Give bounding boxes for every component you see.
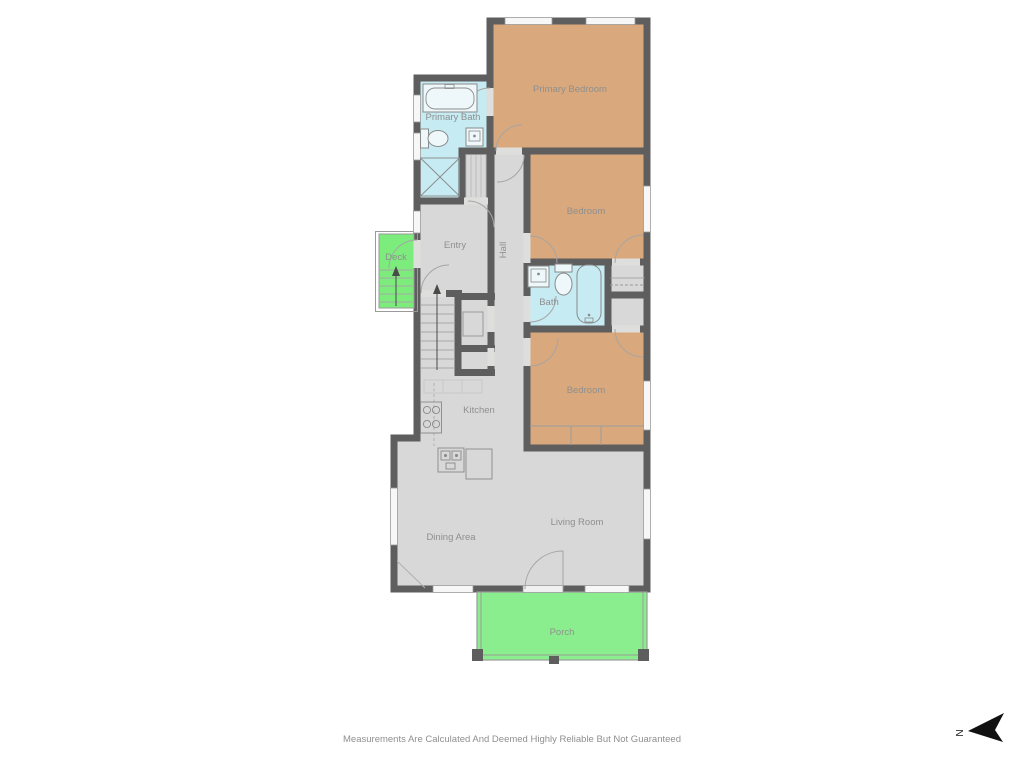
disclaimer-text: Measurements Are Calculated And Deemed H… [0, 734, 1024, 745]
room-a-door-opening [488, 306, 495, 332]
closet-top [608, 262, 647, 295]
porch-post [638, 649, 649, 661]
label-entry: Entry [444, 240, 466, 251]
closet-bottom [608, 295, 647, 329]
toilet-icon [555, 264, 572, 295]
sink-icon [528, 266, 549, 287]
deck [376, 232, 418, 312]
primary-bedroom-door-opening [496, 148, 522, 155]
label-bedroom-3: Bedroom [567, 385, 606, 396]
window [644, 381, 651, 430]
stair-right-wall [455, 290, 462, 376]
bedroom3-door-opening [524, 338, 531, 366]
window [644, 186, 651, 232]
label-bath-2: Bath [539, 297, 559, 308]
label-bedroom-2: Bedroom [567, 206, 606, 217]
closet-bottom-door-opening [612, 326, 640, 333]
label-hall: Hall [498, 242, 509, 258]
label-deck: Deck [385, 252, 407, 263]
bedroom2-door-opening [524, 233, 531, 263]
toilet-icon [421, 129, 449, 148]
label-dining-area: Dining Area [426, 532, 476, 543]
floor-plan-page: Primary Bedroom Primary Bath Bedroom Bat… [0, 0, 1024, 768]
label-primary-bedroom: Primary Bedroom [533, 84, 607, 95]
porch-floor [477, 592, 647, 660]
window [585, 586, 629, 593]
primary-bath-door-opening [487, 88, 494, 116]
porch-post [472, 649, 483, 661]
label-porch: Porch [550, 627, 575, 638]
sink-icon [466, 128, 483, 146]
window [414, 211, 421, 233]
window [433, 586, 473, 593]
bath2-door-opening [524, 296, 531, 322]
label-kitchen: Kitchen [463, 405, 495, 416]
label-primary-bath: Primary Bath [426, 112, 481, 123]
window [391, 488, 398, 545]
window [414, 133, 421, 160]
closet-top-door-opening [612, 259, 640, 266]
window [414, 95, 421, 122]
label-living-room: Living Room [551, 517, 604, 528]
window [586, 18, 635, 25]
room-b-door-opening [488, 348, 495, 366]
deck-door-opening [414, 240, 421, 268]
porch-post [549, 656, 559, 664]
window [505, 18, 552, 25]
floor-plan-drawing: Primary Bedroom Primary Bath Bedroom Bat… [0, 0, 1024, 768]
porch-door-opening [523, 586, 563, 593]
entry-door-opening [464, 198, 488, 205]
window [644, 489, 651, 539]
